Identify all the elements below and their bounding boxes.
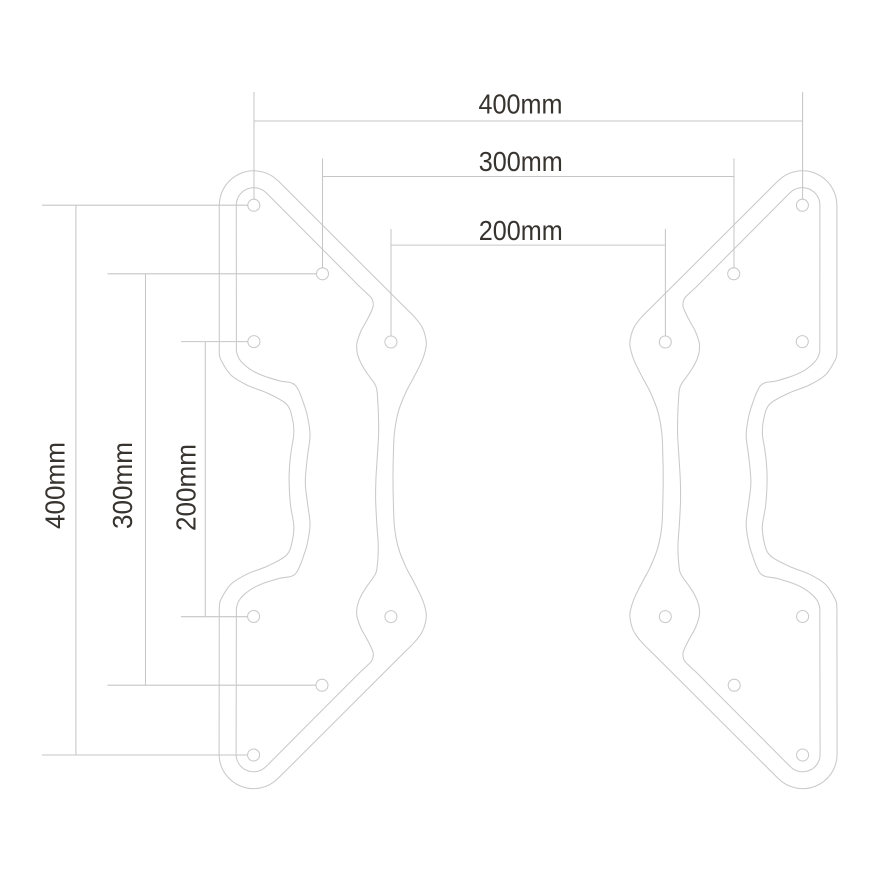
- svg-text:400mm: 400mm: [479, 88, 563, 119]
- svg-text:300mm: 300mm: [107, 442, 138, 529]
- svg-text:300mm: 300mm: [479, 146, 563, 177]
- svg-text:200mm: 200mm: [479, 215, 563, 246]
- svg-text:400mm: 400mm: [39, 442, 70, 529]
- svg-text:200mm: 200mm: [171, 444, 202, 531]
